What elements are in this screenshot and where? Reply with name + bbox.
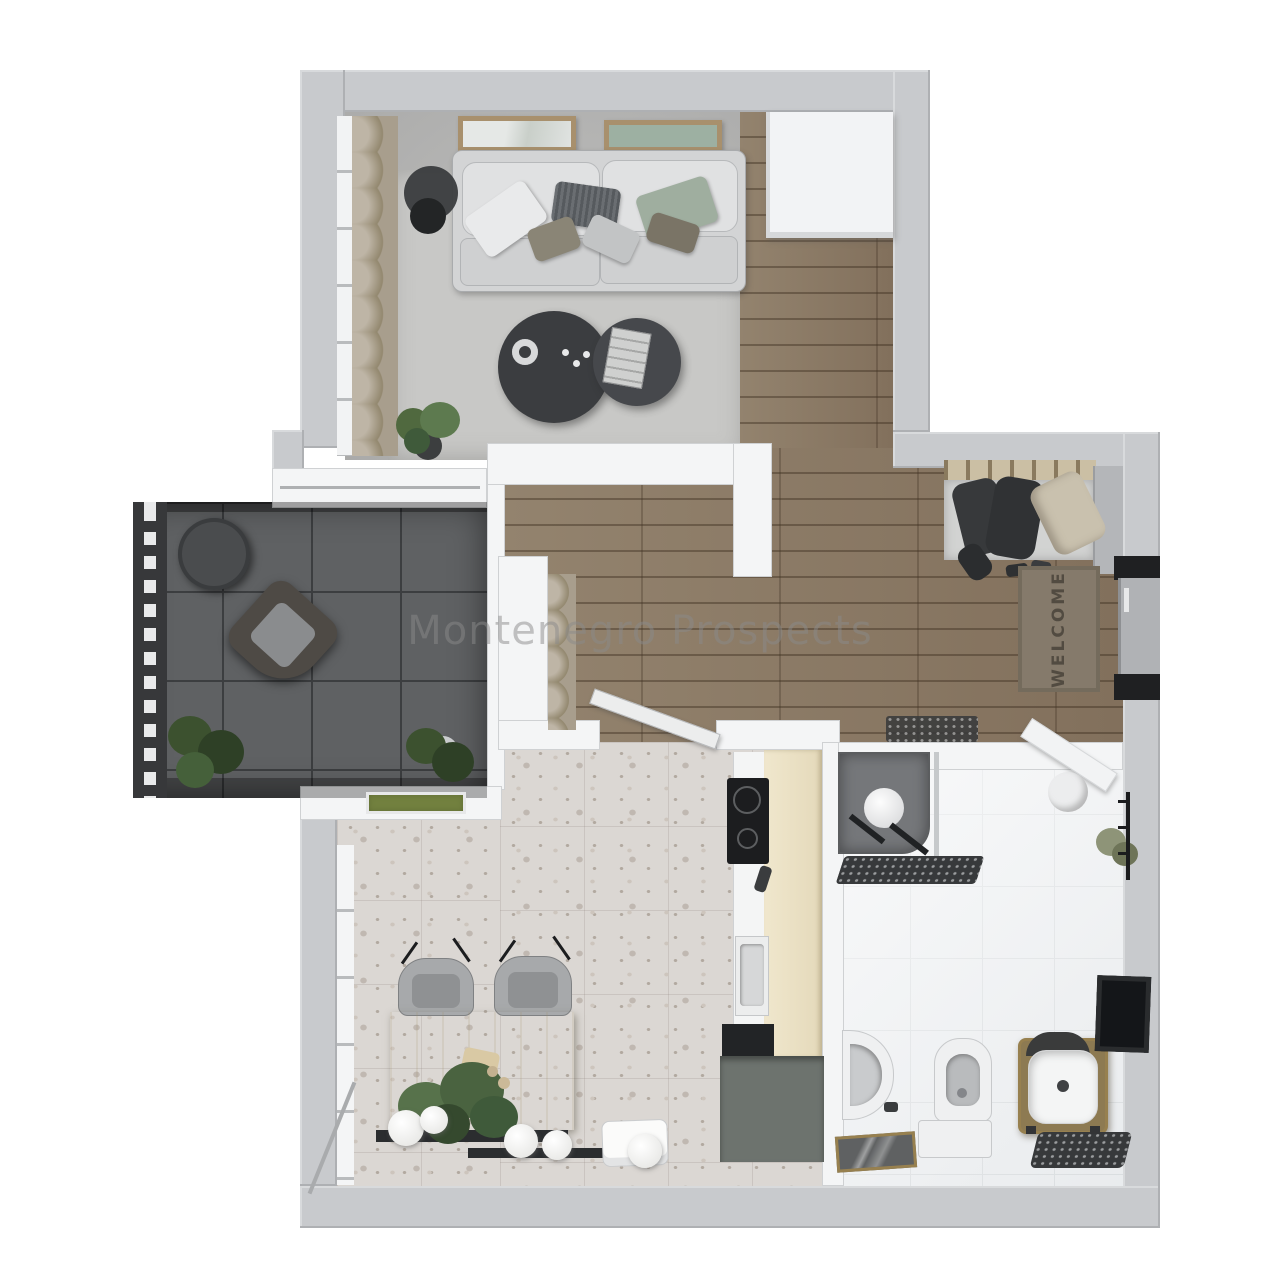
towel-rail-bar — [1126, 792, 1130, 880]
toilet-flush-button — [884, 1102, 898, 1112]
pendant-sphere — [504, 1124, 538, 1158]
shower-glass-panel — [934, 752, 939, 868]
towel-bundle — [1048, 772, 1088, 812]
kitchen-counter-wood — [764, 750, 822, 1058]
tall-cabinet-gray — [720, 1056, 824, 1162]
vanity-foot — [1026, 1126, 1036, 1134]
planter-window-inset — [366, 792, 466, 814]
rail-hook — [1118, 800, 1127, 803]
living-window-band — [337, 116, 352, 456]
decor-dot-1 — [562, 349, 569, 356]
wall-mirror-black — [1095, 975, 1152, 1053]
dining-chair-2-seat — [508, 972, 558, 1008]
kitchen-window-band — [337, 845, 354, 1185]
balcony-shadow-top — [167, 502, 487, 512]
balcony-table — [178, 518, 250, 590]
hob-burner-large — [733, 786, 761, 814]
wall-top — [300, 70, 930, 112]
vanity-drain-knob — [1057, 1080, 1069, 1092]
decor-dot-3 — [583, 351, 590, 358]
tall-cabinet-black — [722, 1024, 774, 1060]
shower-drain-head — [864, 788, 904, 828]
hall-doormat — [886, 716, 978, 742]
wall-art-frame-2 — [604, 120, 722, 152]
front-door-jamb-top — [1114, 556, 1160, 580]
pendant-sphere — [628, 1134, 662, 1168]
decor-bowl — [512, 339, 538, 365]
bath-mat — [1030, 1132, 1133, 1168]
front-door-jamb-bottom — [1114, 674, 1160, 700]
hob-burner-small — [737, 828, 758, 849]
dining-chair-1-seat — [412, 974, 460, 1008]
pendant-sphere — [388, 1110, 424, 1146]
bidet-bowl — [946, 1054, 980, 1106]
wall-bottom — [300, 1186, 1160, 1228]
decor-dot-2 — [573, 360, 580, 367]
watermark: Montenegro Prospects — [0, 608, 1280, 654]
toilet-cistern — [918, 1120, 992, 1158]
wall-right-upper — [893, 70, 930, 432]
balcony-window-line-top — [280, 486, 480, 489]
wall-art-frame-1 — [458, 116, 576, 152]
plant-leaves — [404, 428, 430, 454]
gold-floor-tray — [835, 1131, 917, 1172]
shower-mat — [835, 856, 984, 884]
kitchen-sink-basin — [740, 944, 764, 1006]
plant-leaves — [176, 752, 214, 788]
halfwall-living-vertical — [733, 443, 772, 577]
floor-lamp-base — [410, 198, 446, 234]
wall-left-lower — [300, 816, 337, 1186]
halfwall-living-horizontal — [487, 443, 772, 485]
pendant-sphere — [542, 1130, 572, 1160]
bidet-drain — [957, 1088, 967, 1098]
cup-2 — [498, 1077, 510, 1089]
plant-leaves — [432, 742, 474, 782]
floorplan-render: WELCOME — [0, 0, 1280, 1280]
cup-1 — [487, 1066, 498, 1077]
vanity-foot — [1090, 1126, 1100, 1134]
rail-hook — [1118, 826, 1127, 829]
pendant-sphere — [420, 1106, 448, 1134]
white-wardrobe — [766, 112, 893, 238]
rail-hook — [1118, 852, 1127, 855]
living-curtains — [352, 116, 398, 456]
